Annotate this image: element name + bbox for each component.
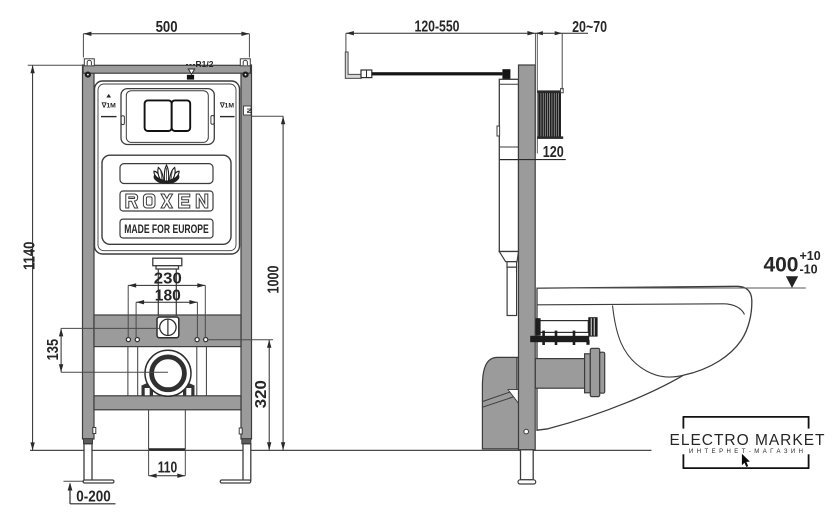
svg-text:500: 500 [156,19,178,36]
svg-text:ELECTRO MARKET: ELECTRO MARKET [670,432,826,449]
svg-text:+10: +10 [800,249,821,263]
svg-text:-10: -10 [800,262,818,276]
svg-text:R1/2: R1/2 [196,59,214,69]
svg-text:ИНТЕРНЕТ-МАГАЗИН: ИНТЕРНЕТ-МАГАЗИН [689,449,803,455]
svg-text:320: 320 [253,380,270,408]
svg-text:0-200: 0-200 [76,489,111,506]
svg-text:20~70: 20~70 [572,19,607,36]
svg-text:∇1M: ∇1M [101,102,116,110]
svg-text:120: 120 [543,144,564,161]
svg-text:∇1M: ∇1M [219,102,234,110]
svg-text:120-550: 120-550 [415,19,460,36]
svg-text:1000: 1000 [266,265,283,293]
svg-text:110: 110 [158,460,178,477]
svg-text:180: 180 [155,288,181,305]
svg-text:400: 400 [763,254,798,277]
svg-text:1140: 1140 [22,241,39,270]
svg-text:MADE FOR EUROPE: MADE FOR EUROPE [124,224,209,236]
svg-text:135: 135 [45,339,62,361]
svg-text:230: 230 [154,271,182,288]
svg-text:N: N [245,108,252,113]
